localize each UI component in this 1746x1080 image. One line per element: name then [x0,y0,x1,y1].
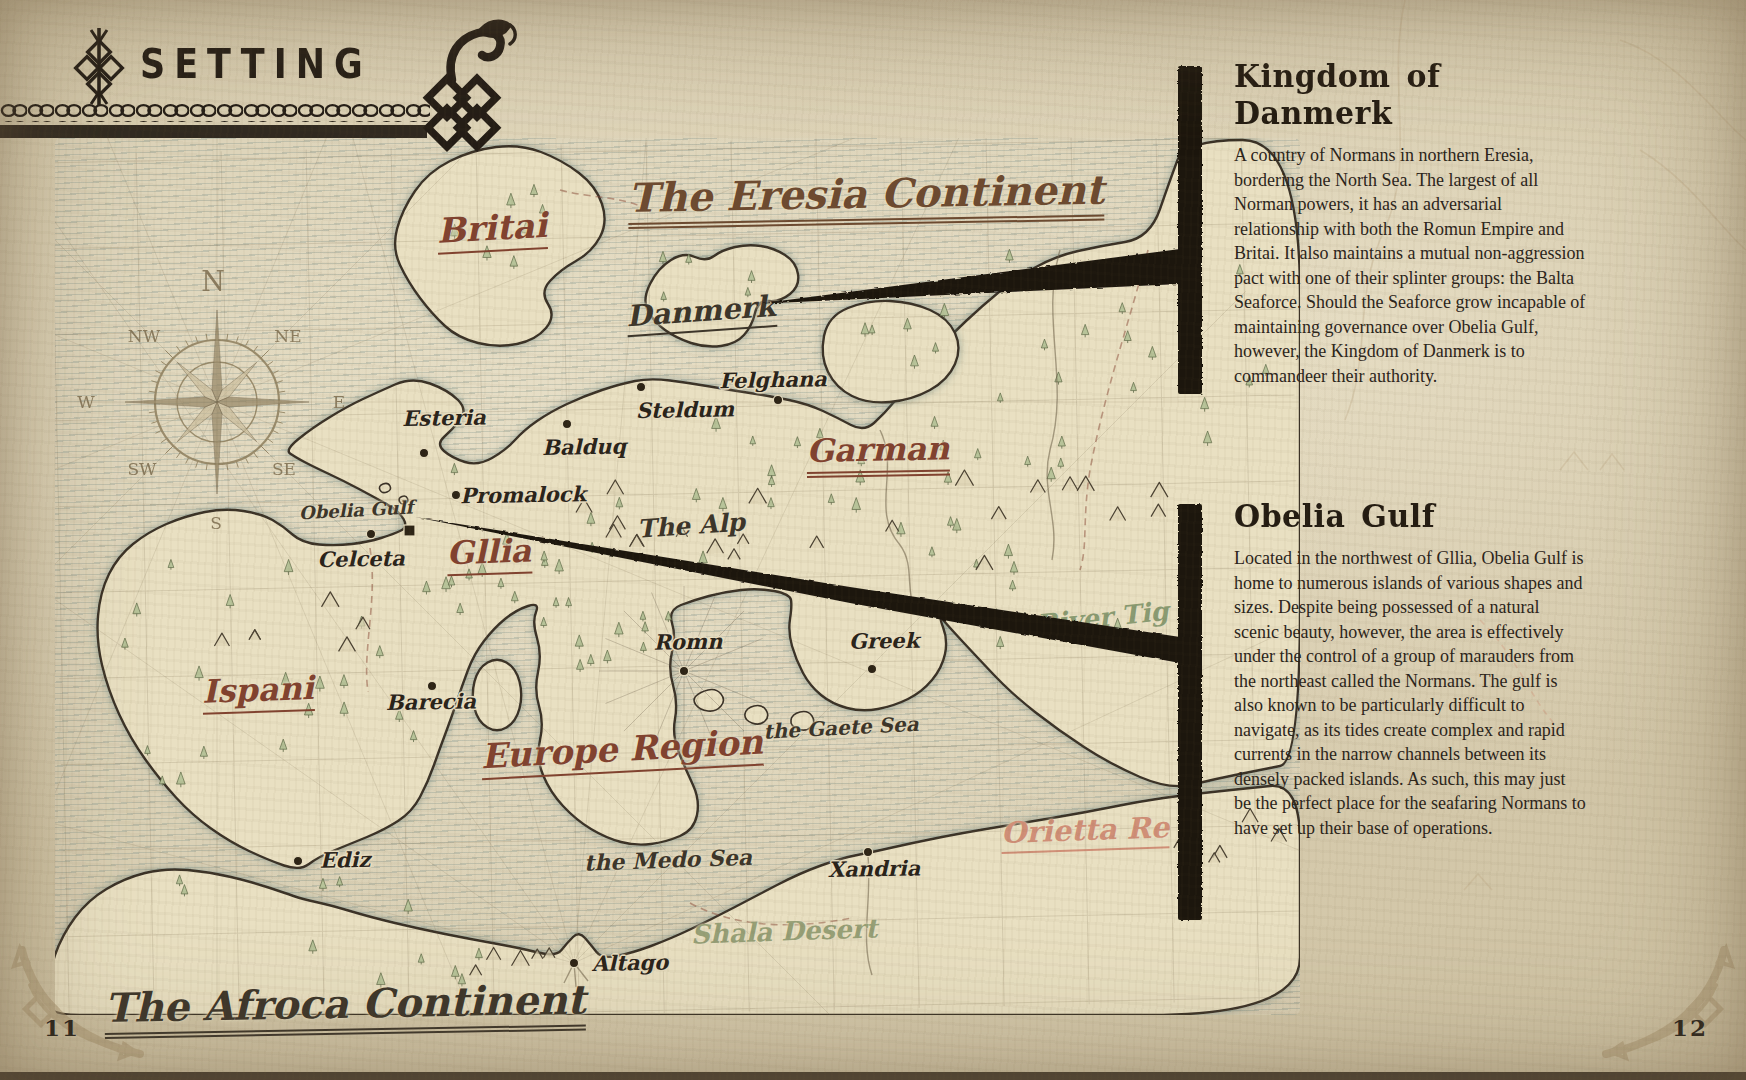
callout-bar-2 [1178,504,1202,920]
page-number-right: 12 [1672,1014,1708,1041]
knot-totem-icon [76,28,123,106]
callout-pointer-obelia [415,517,1180,663]
callout-bar-1 [1178,66,1202,394]
bottom-edge-strip [0,1072,1746,1080]
callout-title: Kingdom of Danmerk [1234,56,1586,132]
callout-kingdom-of-danmerk: Kingdom of Danmerk A country of Normans … [1234,62,1586,388]
callout-obelia-gulf: Obelia Gulf Located in the northwest of … [1234,500,1586,840]
dragon-knot-icon [428,21,515,147]
page-header: SETTING [0,0,560,180]
book-page: The Eresia ContinentThe Afroca Continent… [0,0,1746,1080]
callout-body: A country of Normans in northern Eresia,… [1234,143,1586,388]
page-title: SETTING [140,40,372,87]
callout-body: Located in the northwest of Gllia, Obeli… [1234,546,1586,840]
knot-border-band [0,104,430,138]
page-number-left: 11 [44,1014,80,1041]
corner-knot-right [1606,948,1732,1058]
callout-title: Obelia Gulf [1234,497,1586,535]
corner-knot-left [14,948,140,1058]
callout-pointer-danmerk [757,249,1180,304]
